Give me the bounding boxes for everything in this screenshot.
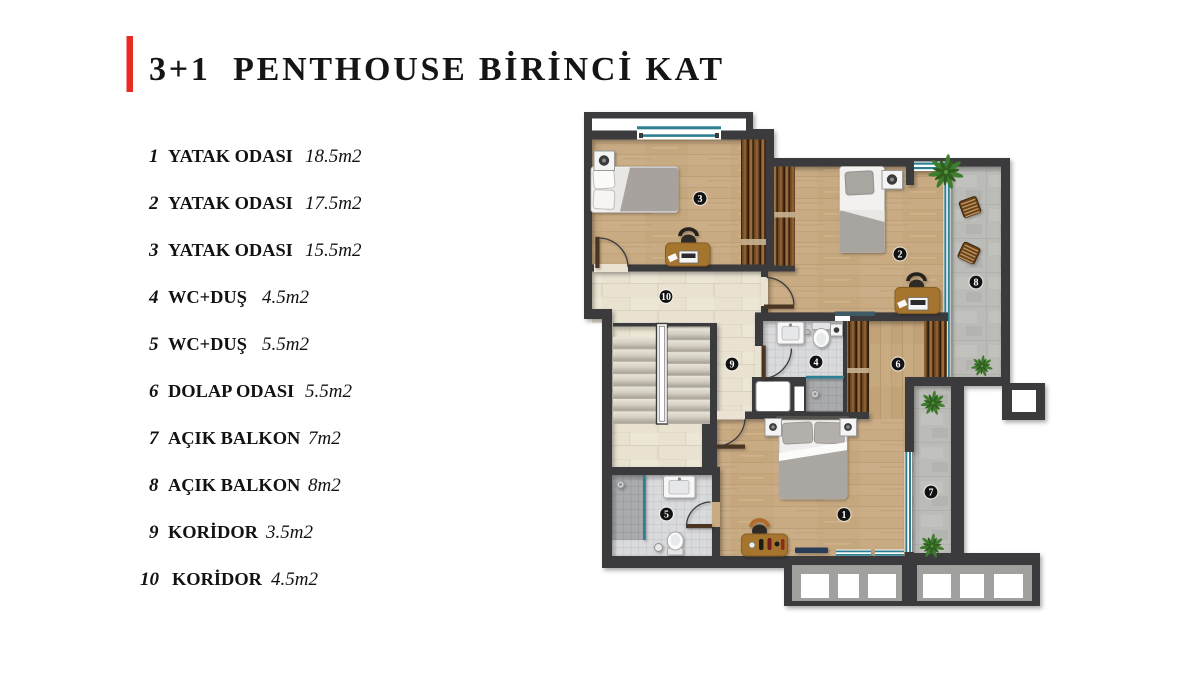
svg-text:AÇIK BALKON: AÇIK BALKON: [168, 428, 301, 448]
svg-text:WC+DUŞ: WC+DUŞ: [168, 287, 247, 307]
svg-text:6: 6: [896, 360, 901, 371]
svg-text:15.5m2: 15.5m2: [305, 240, 362, 261]
svg-text:8: 8: [149, 475, 159, 496]
svg-text:7: 7: [929, 488, 934, 499]
svg-text:2: 2: [898, 250, 903, 261]
svg-text:3: 3: [698, 194, 703, 205]
svg-text:YATAK ODASI: YATAK ODASI: [168, 193, 293, 213]
svg-text:YATAK ODASI: YATAK ODASI: [168, 146, 293, 166]
svg-text:10: 10: [661, 292, 671, 303]
svg-text:WC+DUŞ: WC+DUŞ: [168, 334, 247, 354]
svg-text:8: 8: [974, 278, 979, 289]
svg-text:5.5m2: 5.5m2: [262, 334, 309, 355]
svg-text:3.5m2: 3.5m2: [265, 522, 313, 543]
svg-text:KORİDOR: KORİDOR: [172, 569, 263, 589]
svg-text:9: 9: [730, 360, 735, 371]
svg-text:3: 3: [148, 240, 159, 261]
svg-text:18.5m2: 18.5m2: [305, 146, 362, 167]
svg-text:7m2: 7m2: [308, 428, 341, 449]
svg-text:4: 4: [148, 287, 159, 308]
svg-text:5.5m2: 5.5m2: [305, 381, 352, 402]
svg-text:8m2: 8m2: [308, 475, 341, 496]
svg-text:6: 6: [149, 381, 159, 402]
svg-text:5: 5: [664, 510, 669, 521]
svg-text:7: 7: [149, 428, 160, 449]
svg-text:AÇIK BALKON: AÇIK BALKON: [168, 475, 301, 495]
svg-text:KORİDOR: KORİDOR: [168, 522, 259, 542]
svg-text:1: 1: [149, 146, 159, 167]
svg-text:4.5m2: 4.5m2: [262, 287, 309, 308]
svg-text:YATAK ODASI: YATAK ODASI: [168, 240, 293, 260]
svg-text:2: 2: [148, 193, 159, 214]
svg-text:4: 4: [814, 358, 819, 369]
svg-text:9: 9: [149, 522, 159, 543]
svg-text:5: 5: [149, 334, 159, 355]
svg-text:DOLAP ODASI: DOLAP ODASI: [168, 381, 294, 401]
svg-text:1: 1: [842, 510, 847, 521]
svg-text:17.5m2: 17.5m2: [305, 193, 362, 214]
svg-text:10: 10: [140, 569, 160, 590]
svg-text:3+1 PENTHOUSE BİRİNCİ KAT: 3+1 PENTHOUSE BİRİNCİ KAT: [149, 50, 725, 88]
svg-text:4.5m2: 4.5m2: [271, 569, 318, 590]
